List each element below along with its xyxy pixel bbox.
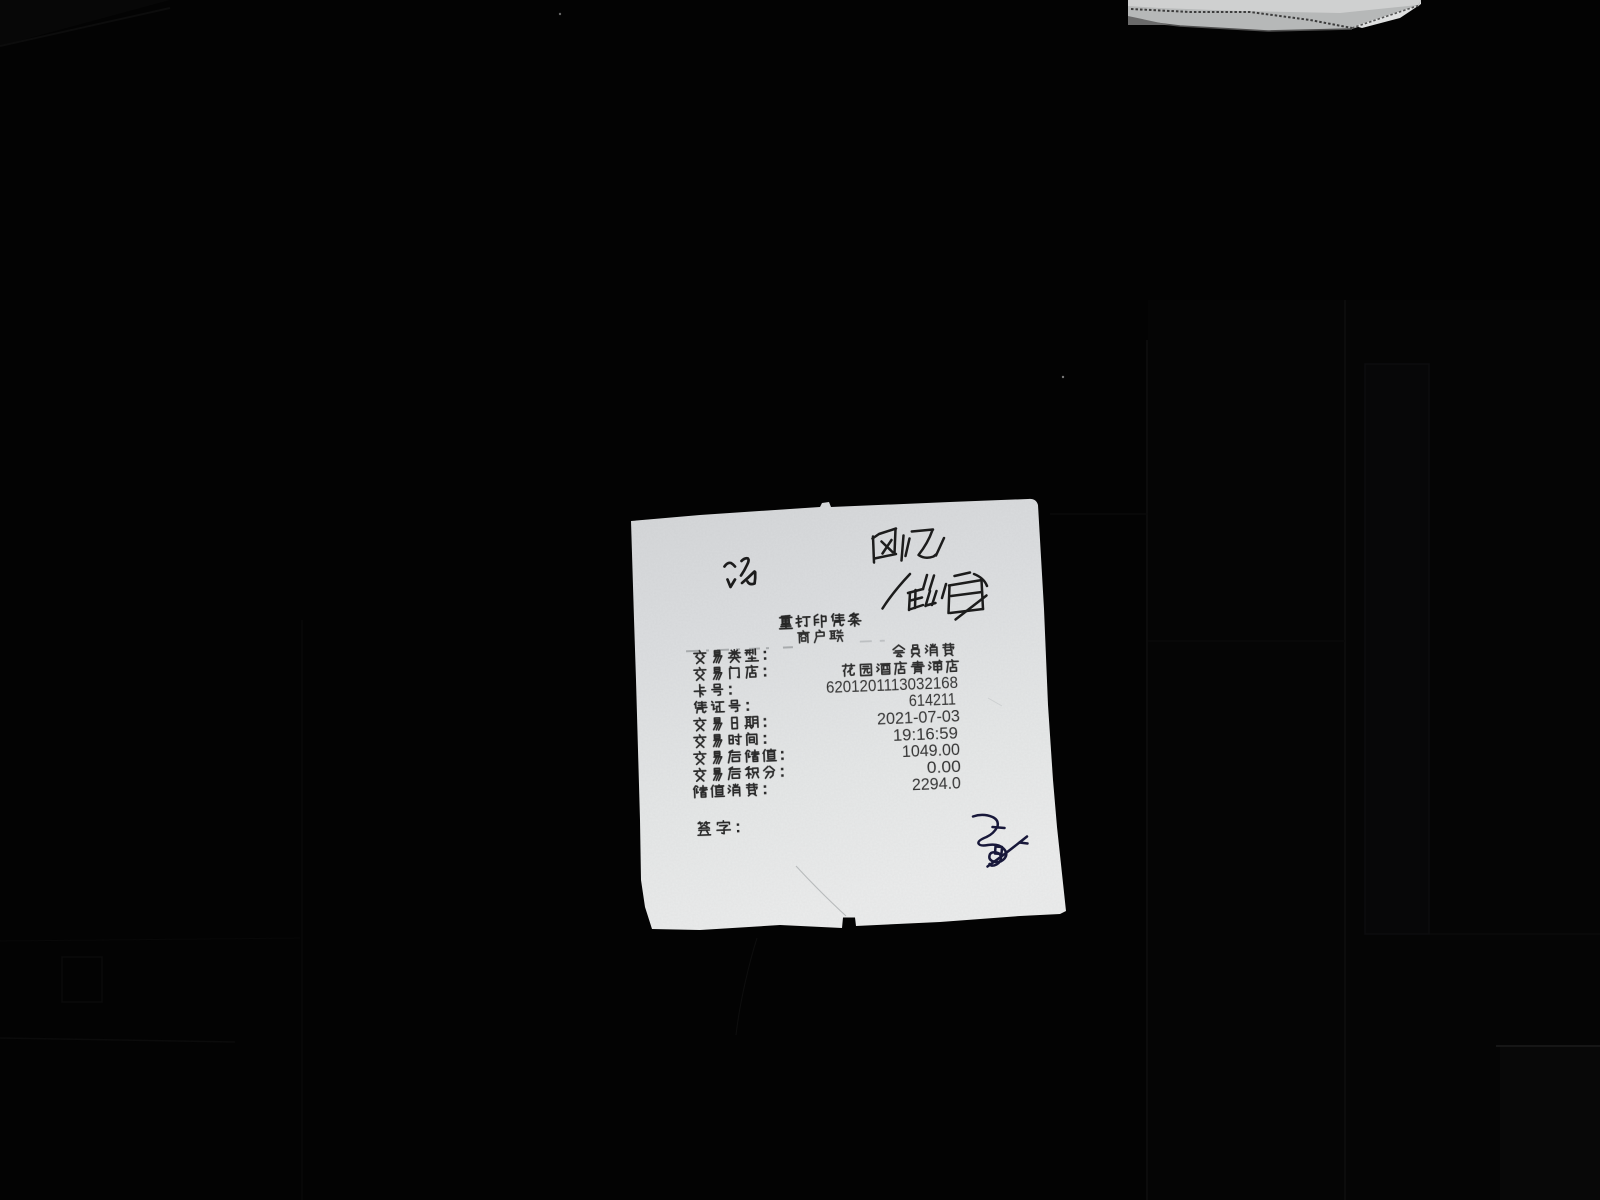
svg-text:2294.0: 2294.0 bbox=[912, 774, 962, 795]
